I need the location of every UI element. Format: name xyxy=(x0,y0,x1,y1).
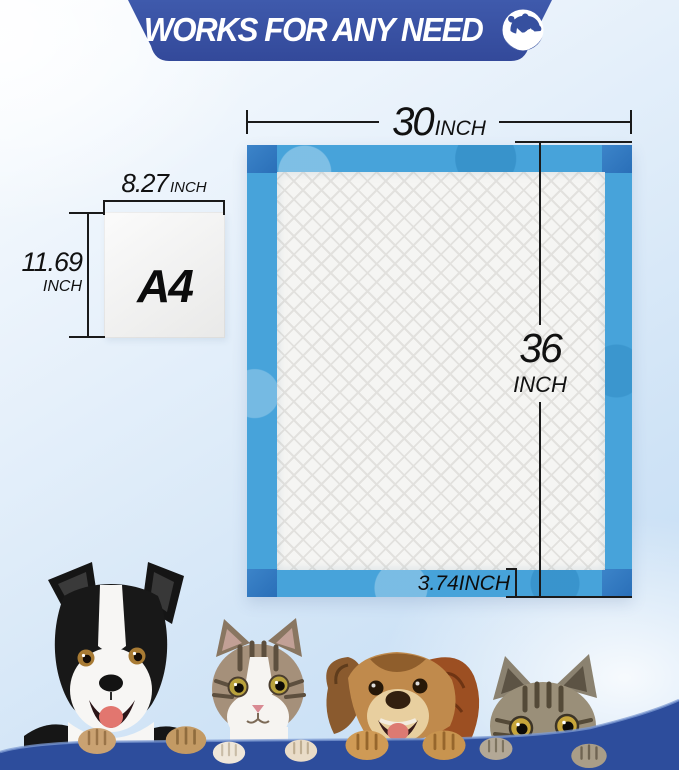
dimension-line xyxy=(248,121,379,123)
cat-paw xyxy=(478,734,514,760)
a4-height-label: 11.69 INCH xyxy=(2,248,82,296)
dog-and-cat-icon xyxy=(501,8,545,52)
dimension-tick xyxy=(69,336,105,338)
pad-width-label: 30 INCH xyxy=(379,100,499,145)
dog-paw xyxy=(344,726,390,760)
dimension-tick xyxy=(630,110,632,134)
dimension-line xyxy=(499,121,630,123)
a4-width-unit: INCH xyxy=(170,179,207,196)
border-dimension-line xyxy=(515,569,517,598)
dog-paw xyxy=(420,726,468,760)
dimension-line xyxy=(105,200,223,202)
a4-width-value: 8.27 xyxy=(121,168,168,199)
dog-paw xyxy=(164,722,208,754)
a4-width-label: 8.27 INCH xyxy=(103,168,225,199)
cat-paw xyxy=(284,736,318,762)
dog-paw xyxy=(76,724,118,754)
cat-paw xyxy=(212,738,246,764)
dimension-tick xyxy=(506,596,517,598)
dimension-tick xyxy=(506,568,517,570)
pad-height-value: 36 xyxy=(513,327,567,370)
product-infographic: WORKS FOR ANY NEED 30 INCH xyxy=(0,0,679,770)
pad-corner-tape xyxy=(247,569,277,597)
dimension-tick xyxy=(223,200,225,215)
pad-width-unit: INCH xyxy=(435,117,486,141)
pad-corner-tape xyxy=(602,569,632,597)
dimension-line xyxy=(539,402,541,596)
a4-paper: A4 xyxy=(104,212,225,338)
a4-height-dimension-line xyxy=(87,213,89,338)
pad-corner-tape xyxy=(247,145,277,173)
pad-width-dimension: 30 INCH xyxy=(246,100,632,144)
pad-corner-tape xyxy=(602,145,632,173)
a4-height-unit: INCH xyxy=(2,276,82,296)
pad-height-label: 36 INCH xyxy=(513,327,567,398)
cat-paw xyxy=(570,740,608,768)
a4-paper-label: A4 xyxy=(137,259,192,313)
banner: WORKS FOR ANY NEED xyxy=(126,0,554,63)
a4-height-value: 11.69 xyxy=(2,248,82,276)
dimension-line xyxy=(539,143,541,325)
pad-height-dimension: 36 INCH xyxy=(505,143,575,596)
dimension-tick xyxy=(511,596,632,598)
dimension-tick xyxy=(69,212,105,214)
pad-border-label: 3.74INCH xyxy=(413,572,510,596)
banner-title: WORKS FOR ANY NEED xyxy=(144,11,482,49)
pad-height-unit: INCH xyxy=(513,372,567,398)
pad-width-value: 30 xyxy=(392,100,433,145)
a4-width-dimension: 8.27 INCH xyxy=(103,168,225,215)
